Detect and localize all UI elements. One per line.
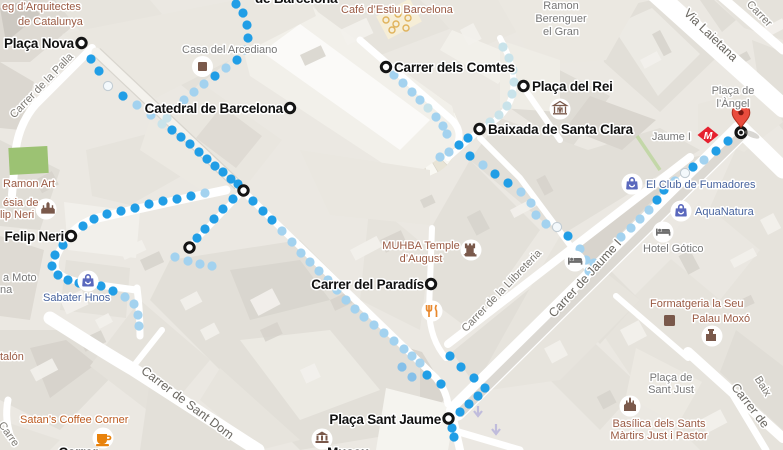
svg-text:Café d’Estiu Barcelona: Café d’Estiu Barcelona	[341, 4, 454, 16]
svg-text:eg d’Arquitectes: eg d’Arquitectes	[2, 1, 81, 13]
svg-text:Plaça de: Plaça de	[650, 372, 693, 384]
svg-text:Museu: Museu	[327, 445, 369, 450]
svg-text:Plaça de: Plaça de	[712, 85, 755, 97]
svg-text:Basílica dels Sants: Basílica dels Sants	[613, 418, 706, 430]
svg-text:Catedral de Barcelona: Catedral de Barcelona	[145, 101, 284, 116]
svg-text:na: na	[0, 284, 13, 296]
svg-text:a Moto: a Moto	[3, 272, 37, 284]
svg-text:Màrtirs Just i Pastor: Màrtirs Just i Pastor	[610, 430, 708, 442]
svg-text:Sant Just: Sant Just	[648, 384, 694, 396]
svg-text:de Barcelona: de Barcelona	[255, 0, 338, 6]
svg-text:Hotel Gótico: Hotel Gótico	[643, 243, 704, 255]
svg-text:el Gran: el Gran	[543, 26, 579, 38]
svg-text:d’August: d’August	[400, 253, 443, 265]
svg-text:Casa del Arcediano: Casa del Arcediano	[182, 44, 277, 56]
svg-text:El Club de Fumadores: El Club de Fumadores	[646, 179, 756, 191]
svg-text:Felip Neri: Felip Neri	[4, 229, 64, 244]
svg-text:MUHBA Temple: MUHBA Temple	[382, 240, 459, 252]
svg-text:Palau Moxó: Palau Moxó	[692, 313, 750, 325]
svg-text:M: M	[557, 106, 563, 115]
svg-text:Carrer del Paradís: Carrer del Paradís	[311, 277, 424, 292]
svg-text:Formatgeria la Seu: Formatgeria la Seu	[650, 298, 744, 310]
svg-text:M: M	[704, 130, 713, 142]
svg-text:Ramon: Ramon	[543, 0, 578, 12]
svg-text:talón: talón	[0, 351, 24, 363]
svg-text:Carrer: Carrer	[58, 445, 98, 450]
svg-text:lip Neri: lip Neri	[0, 209, 34, 221]
svg-text:l’Àngel: l’Àngel	[716, 97, 749, 110]
svg-text:Carrer dels Comtes: Carrer dels Comtes	[394, 60, 515, 75]
svg-text:Plaça del Rei: Plaça del Rei	[532, 79, 613, 94]
svg-text:Satan’s Coffee Corner: Satan’s Coffee Corner	[20, 414, 129, 426]
svg-text:de Catalunya: de Catalunya	[18, 16, 84, 28]
svg-text:Sabater Hnos: Sabater Hnos	[43, 292, 111, 304]
svg-text:Berenguer: Berenguer	[535, 13, 587, 25]
svg-text:Ramon Art: Ramon Art	[3, 178, 55, 190]
svg-text:Jaume I: Jaume I	[652, 131, 691, 143]
svg-text:Plaça Sant Jaume: Plaça Sant Jaume	[329, 412, 441, 427]
svg-text:AquaNatura: AquaNatura	[695, 206, 755, 218]
svg-text:Baixada de Santa Clara: Baixada de Santa Clara	[488, 122, 634, 137]
svg-text:Plaça Nova: Plaça Nova	[4, 36, 75, 51]
svg-text:ésia de: ésia de	[3, 197, 38, 209]
